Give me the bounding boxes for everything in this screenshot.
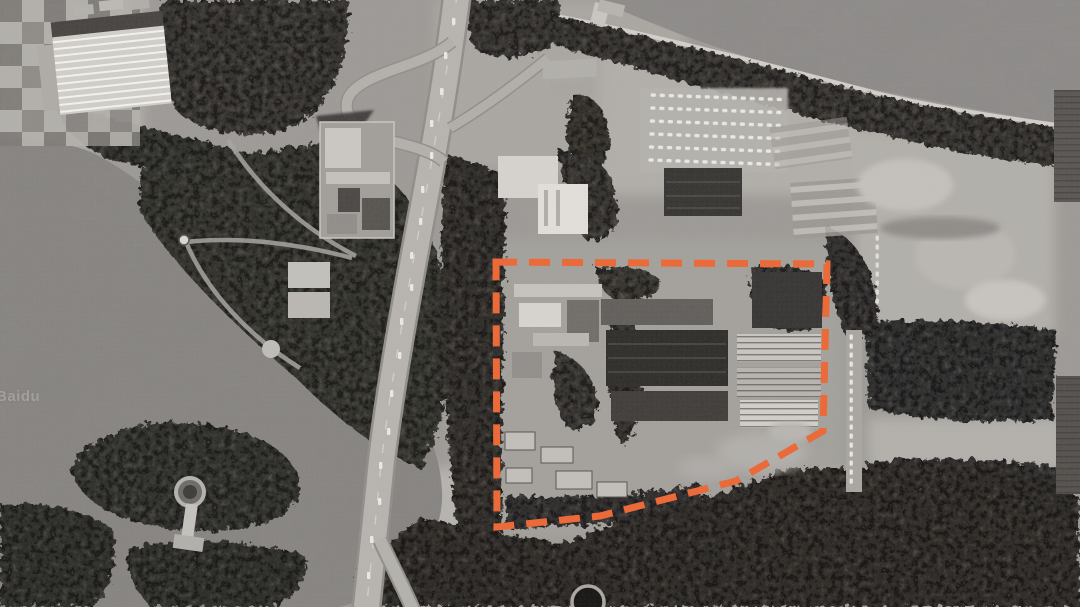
- ring-structure: [174, 476, 206, 508]
- parking-lot-cars: [640, 88, 788, 172]
- baidu-watermark: Baidu: [0, 388, 40, 405]
- dark-warehouse: [664, 168, 742, 216]
- office-building-complex: [316, 110, 394, 238]
- satellite-map-stage[interactable]: Baidu: [0, 0, 1080, 607]
- pond: [572, 586, 604, 607]
- factory-halls: [601, 299, 728, 421]
- monument: [179, 235, 189, 245]
- satellite-scene: [0, 0, 1080, 607]
- roadside-parked-cars: [846, 330, 862, 492]
